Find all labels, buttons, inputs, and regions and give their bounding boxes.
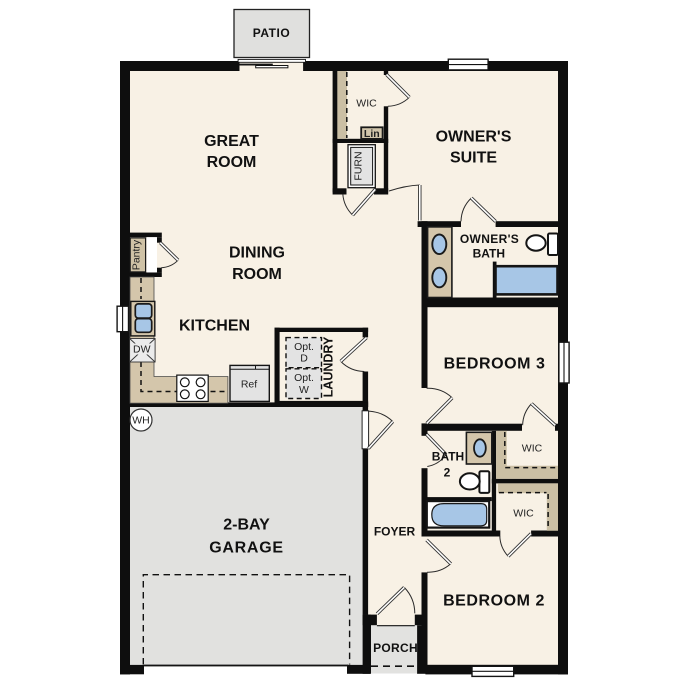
svg-text:SUITE: SUITE <box>450 150 497 167</box>
svg-text:WIC: WIC <box>356 98 377 110</box>
svg-text:DINING: DINING <box>229 245 285 262</box>
svg-text:LAUNDRY: LAUNDRY <box>322 336 336 397</box>
svg-text:WIC: WIC <box>522 443 543 455</box>
svg-text:2: 2 <box>444 466 451 480</box>
svg-text:GREAT: GREAT <box>204 133 259 150</box>
svg-text:Lin: Lin <box>364 128 380 140</box>
svg-text:Pantry: Pantry <box>130 239 142 270</box>
svg-text:BEDROOM 2: BEDROOM 2 <box>443 593 545 610</box>
svg-text:GARAGE: GARAGE <box>209 540 283 557</box>
svg-text:PATIO: PATIO <box>253 26 290 40</box>
svg-text:Opt.: Opt. <box>294 372 314 384</box>
svg-text:D: D <box>300 352 308 364</box>
svg-text:FURN: FURN <box>353 151 365 180</box>
svg-text:Opt.: Opt. <box>294 341 314 353</box>
svg-text:BATH: BATH <box>473 247 505 261</box>
svg-text:FOYER: FOYER <box>374 525 416 539</box>
svg-text:ROOM: ROOM <box>232 266 282 283</box>
svg-text:ROOM: ROOM <box>207 154 257 171</box>
svg-text:2-BAY: 2-BAY <box>223 517 270 534</box>
svg-text:WH: WH <box>132 414 150 426</box>
svg-text:PORCH: PORCH <box>373 641 418 655</box>
svg-text:W: W <box>299 384 309 396</box>
svg-text:DW: DW <box>133 344 151 356</box>
svg-text:WIC: WIC <box>513 508 534 520</box>
svg-text:KITCHEN: KITCHEN <box>179 318 250 335</box>
svg-text:BATH: BATH <box>432 450 464 464</box>
svg-text:OWNER'S: OWNER'S <box>436 129 512 146</box>
svg-text:Ref: Ref <box>241 379 257 391</box>
svg-text:BEDROOM 3: BEDROOM 3 <box>444 356 546 373</box>
svg-text:OWNER'S: OWNER'S <box>460 232 519 246</box>
